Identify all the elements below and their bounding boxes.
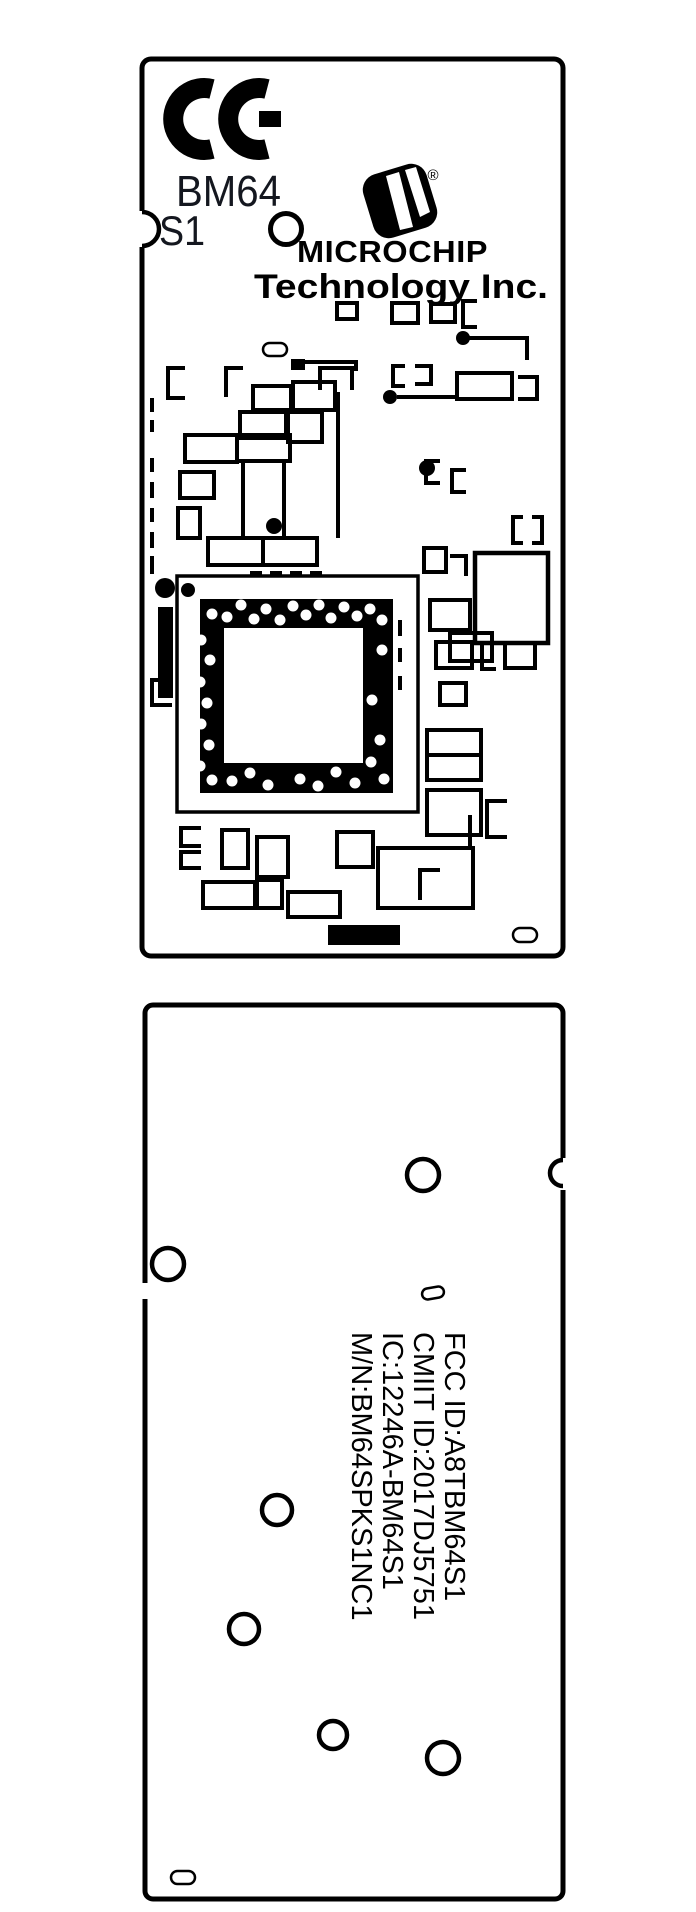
qfn-center-pad bbox=[224, 628, 363, 763]
regulatory-label-mn: M/N:BM64SPKS1NC1 bbox=[345, 1332, 377, 1621]
model-number-line2: S1 bbox=[159, 207, 205, 254]
antenna-bar bbox=[158, 607, 173, 698]
regulatory-label-fcc: FCC ID:A8TBM64S1 bbox=[438, 1332, 470, 1601]
mounting-hole bbox=[229, 1614, 259, 1644]
pcb-bottom-view: FCC ID:A8TBM64S1 CMIIT ID:2017DJ5751 IC:… bbox=[138, 1005, 572, 1899]
test-point-oval bbox=[171, 1871, 195, 1884]
test-point-oval bbox=[263, 343, 287, 356]
regulatory-label-ic: IC:12246A-BM64S1 bbox=[376, 1332, 408, 1590]
mounting-hole bbox=[152, 1248, 184, 1280]
edge-gap bbox=[138, 1283, 148, 1299]
regulatory-label-cmiit: CMIIT ID:2017DJ5751 bbox=[407, 1332, 439, 1620]
mounting-hole bbox=[427, 1742, 459, 1774]
mounting-hole bbox=[262, 1495, 292, 1525]
regulatory-label-block: FCC ID:A8TBM64S1 CMIIT ID:2017DJ5751 IC:… bbox=[345, 1332, 470, 1621]
edge-notch-cut bbox=[134, 211, 145, 247]
test-point-oval bbox=[421, 1286, 445, 1301]
brand-suffix: Technology Inc. bbox=[254, 268, 548, 306]
qfn-chip-footprint bbox=[177, 576, 418, 812]
brand-wordmark: MICROCHIP bbox=[297, 234, 488, 269]
test-point-oval bbox=[513, 928, 537, 942]
connector-pad bbox=[328, 925, 400, 945]
pcb-top-view: BM64 S1 ® MICROCHIP Technology Inc. bbox=[134, 59, 563, 956]
mounting-hole bbox=[407, 1159, 439, 1191]
mounting-hole bbox=[319, 1721, 347, 1749]
pcb-drawing: BM64 S1 ® MICROCHIP Technology Inc. bbox=[0, 0, 696, 1912]
registered-trademark: ® bbox=[427, 167, 438, 184]
label-drawing-page: BM64 S1 ® MICROCHIP Technology Inc. bbox=[0, 0, 696, 1912]
